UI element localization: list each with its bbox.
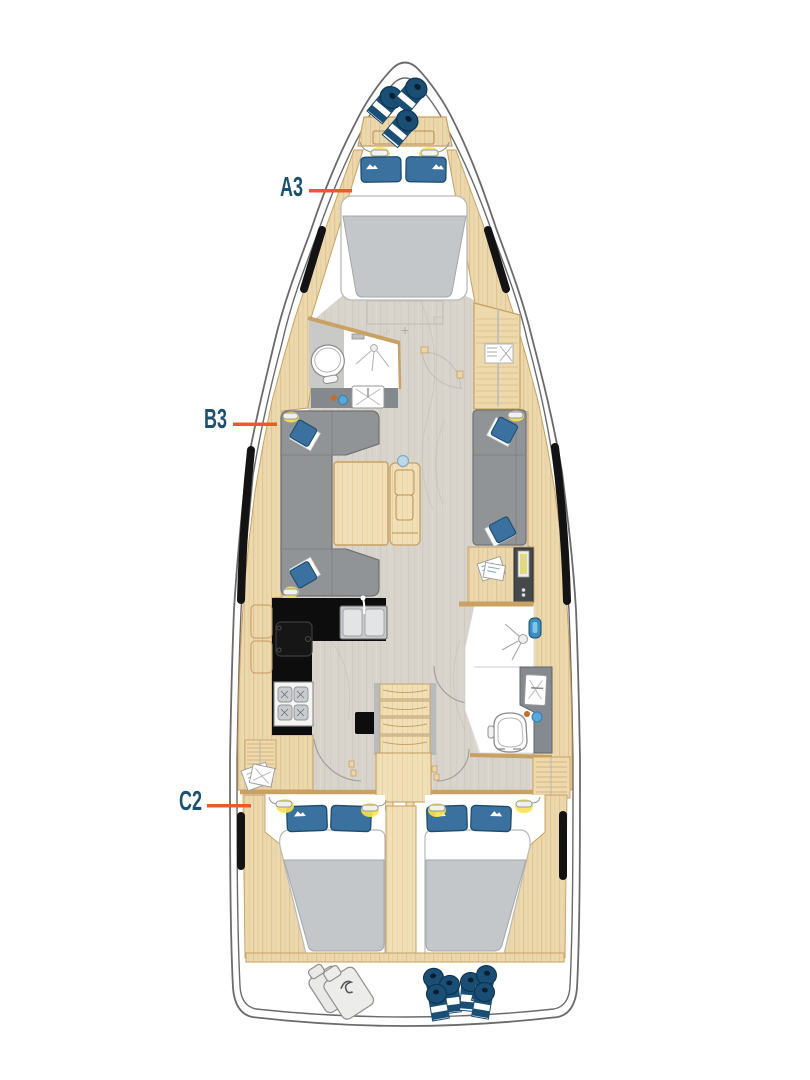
- svg-text:B3: B3: [204, 403, 227, 434]
- svg-text:A3: A3: [280, 171, 303, 202]
- svg-text:C2: C2: [179, 785, 202, 816]
